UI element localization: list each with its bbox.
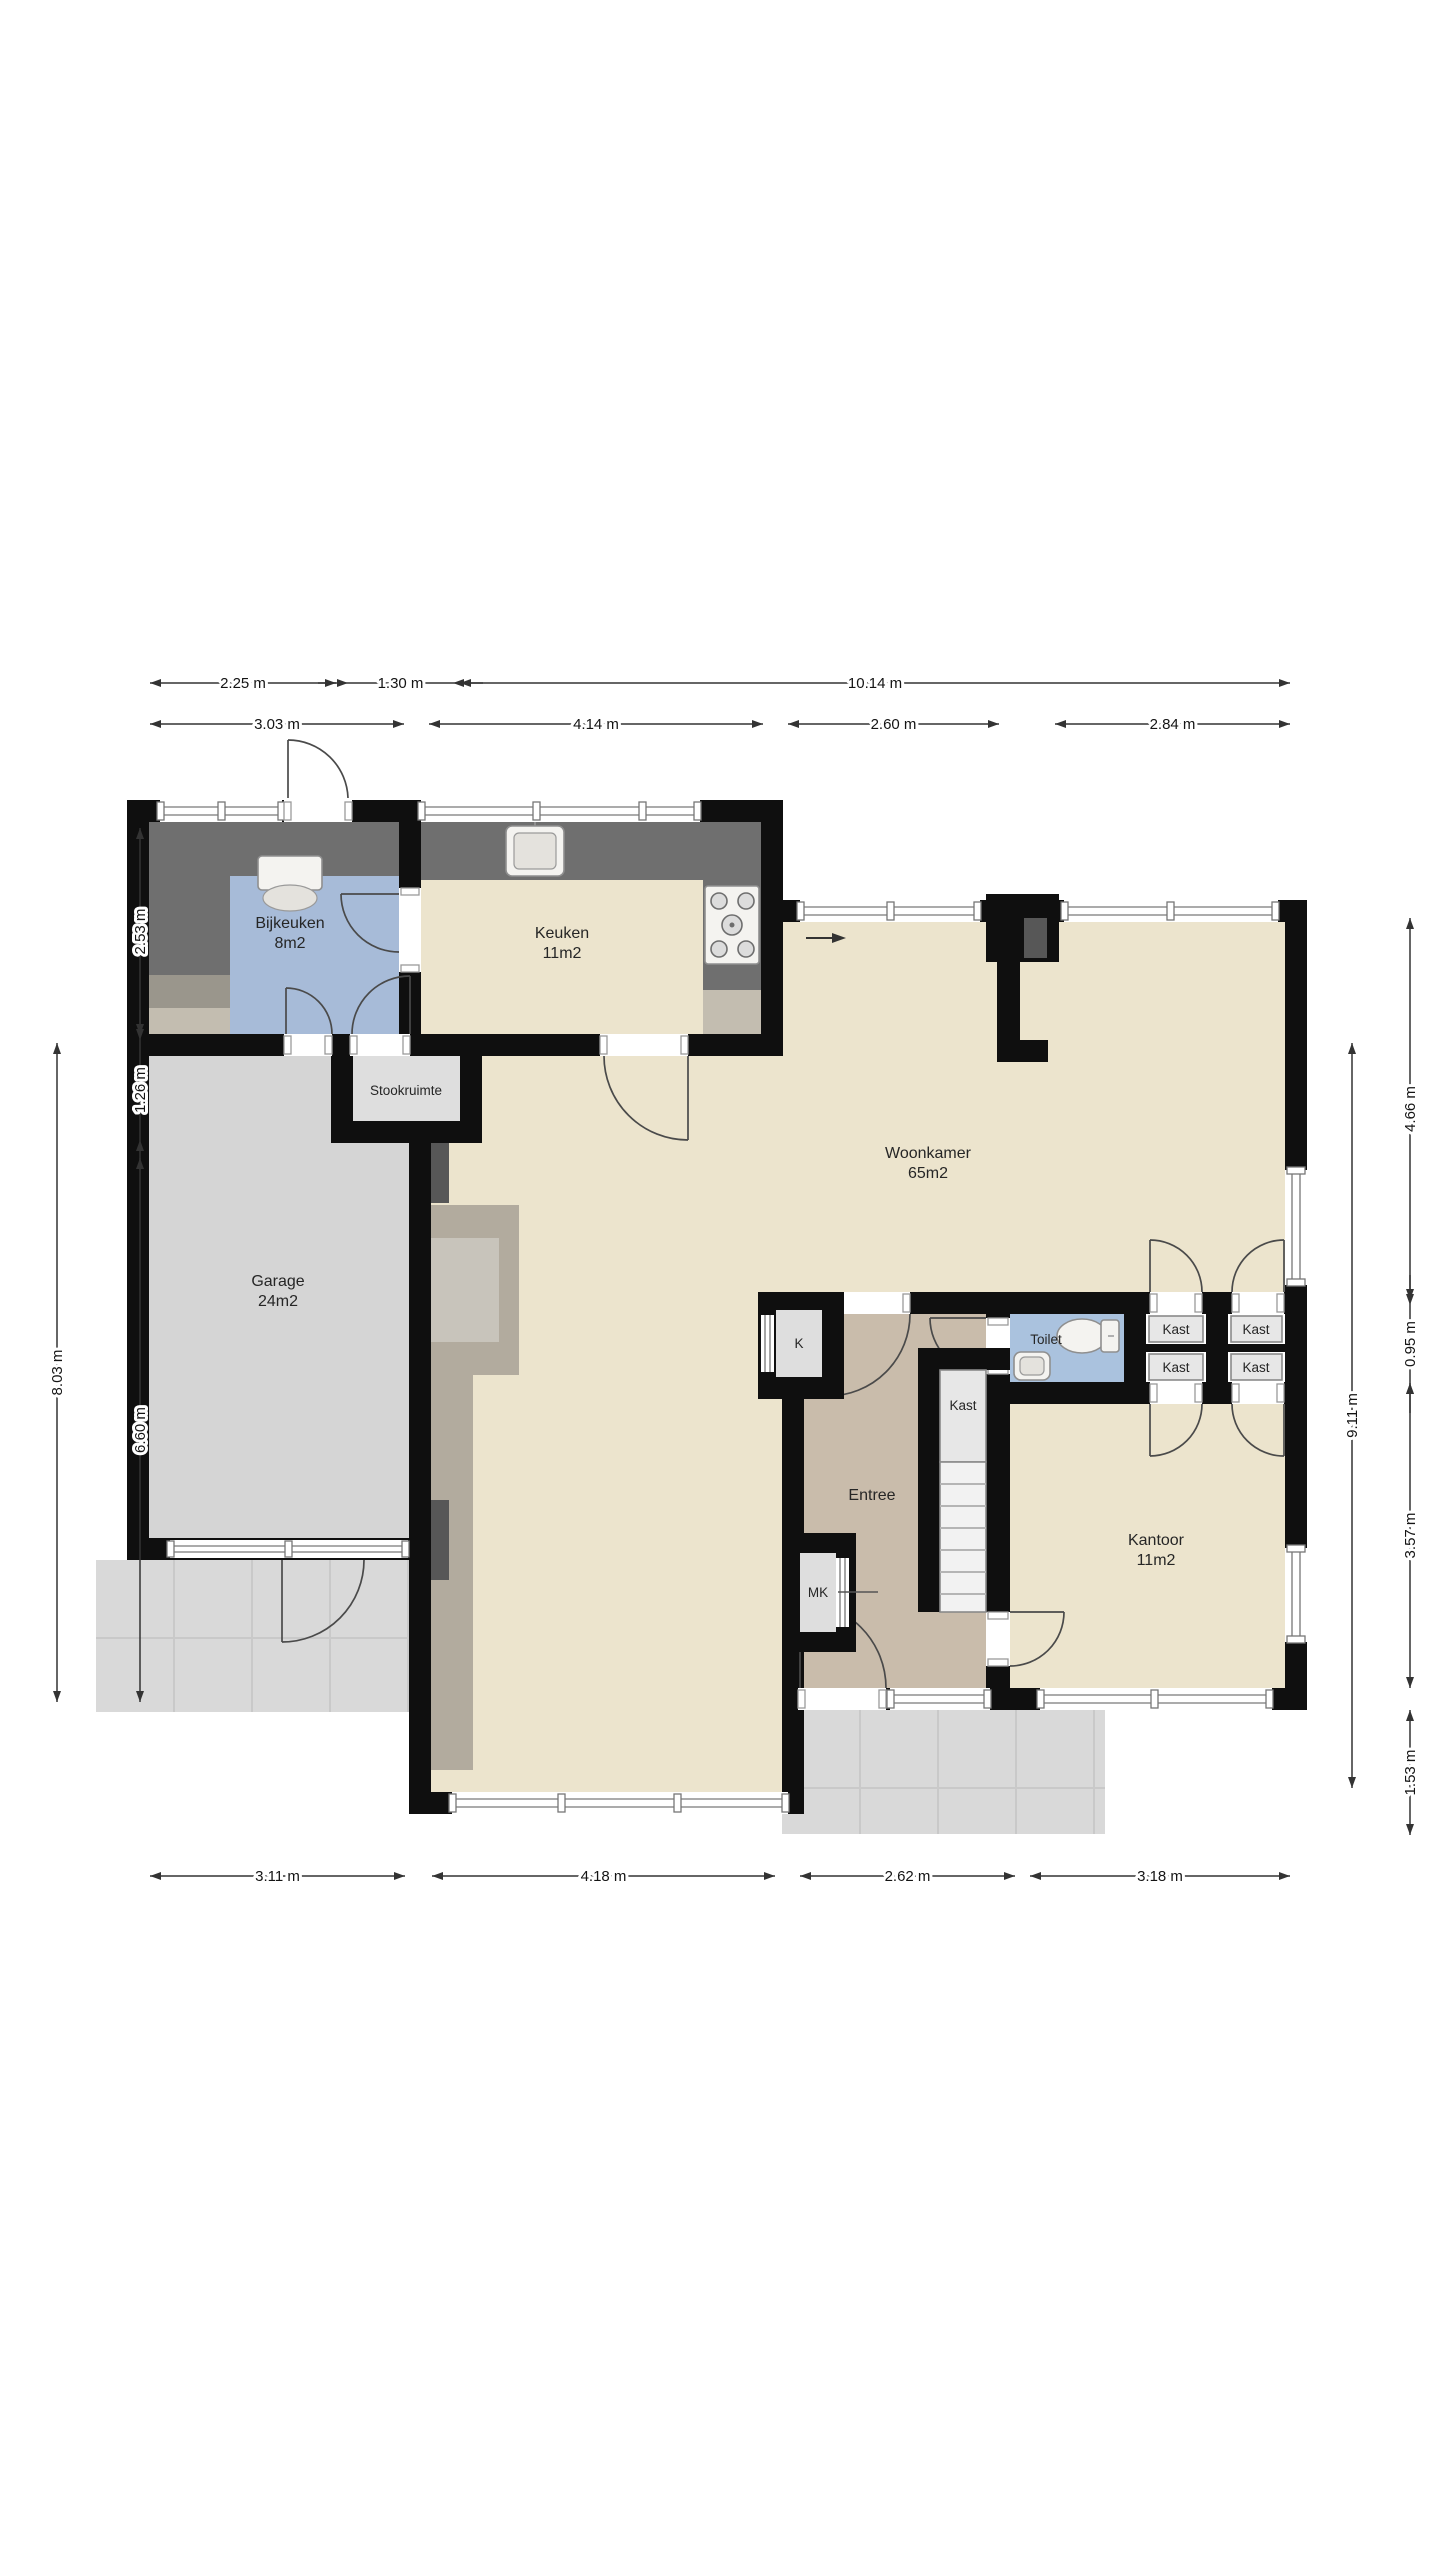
- dimension-label: 2.53 m: [132, 909, 149, 955]
- garage-door: [167, 1540, 409, 1558]
- window-woonkamer-top-right: [1061, 900, 1279, 922]
- dimension-label: 1.53 m: [1402, 1750, 1419, 1796]
- window-woonkamer-top-left: [797, 900, 981, 922]
- bijkeuken-sink: [258, 856, 322, 911]
- dimension-label: 3.03 m: [254, 716, 300, 733]
- room-label-garage: Garage: [251, 1273, 304, 1290]
- dimension-label: 1.30 m: [378, 675, 424, 692]
- dimension-label: 4.14 m: [573, 716, 619, 733]
- floorplan-drawing: Bijkeuken 8m2 Keuken 11m2 Woonkamer 65m2…: [0, 0, 1440, 2560]
- toilet-fixture: [1057, 1319, 1119, 1353]
- dimension-label: 3.11 m: [255, 1868, 300, 1885]
- dimension-label: 3.18 m: [1137, 1868, 1183, 1885]
- hand-basin: [1014, 1352, 1050, 1380]
- closet-label-4: Kast: [1242, 1360, 1269, 1375]
- room-area-keuken: 11m2: [543, 945, 582, 962]
- dimension-label: 4.18 m: [581, 1868, 627, 1885]
- terrace-left: [96, 1560, 431, 1712]
- dimension-label: 0.95 m: [1402, 1321, 1419, 1367]
- window-kantoor-bottom: [1037, 1688, 1273, 1710]
- closet-label-2: Kast: [1242, 1322, 1269, 1337]
- dimension-label: 9.11 m: [1344, 1393, 1361, 1438]
- room-label-mk: MK: [808, 1585, 828, 1600]
- closet-label-3: Kast: [1162, 1360, 1189, 1375]
- dimension-label: 2.25 m: [220, 675, 266, 692]
- room-floor-garage-lower: [149, 1143, 409, 1538]
- floorplan-page: Bijkeuken 8m2 Keuken 11m2 Woonkamer 65m2…: [0, 0, 1440, 2560]
- window-woonkamer-right: [1285, 1167, 1307, 1286]
- dimension-label: 2.84 m: [1150, 716, 1196, 733]
- closet-label-stairs: Kast: [949, 1398, 976, 1413]
- dimension-label: 8.03 m: [49, 1350, 66, 1396]
- dimension-label: 3.57 m: [1402, 1513, 1419, 1559]
- window-keuken: [418, 800, 701, 822]
- room-floor-woonkamer: [783, 922, 1285, 1292]
- window-kantoor-right: [1285, 1545, 1307, 1643]
- dimension-label: 2.60 m: [871, 716, 917, 733]
- dimension-label: 1.26 m: [132, 1067, 149, 1113]
- room-label-entree: Entree: [848, 1487, 895, 1504]
- door-bijkeuken-outside: [284, 740, 352, 822]
- closet-label-1: Kast: [1162, 1322, 1189, 1337]
- dimension-label: 6.60 m: [132, 1407, 149, 1453]
- room-label-bijkeuken: Bijkeuken: [255, 915, 324, 932]
- front-door: [798, 1688, 886, 1710]
- room-area-woonkamer: 65m2: [908, 1165, 948, 1182]
- terrace-front: [782, 1710, 1105, 1834]
- window-woonkamer-bottom: [449, 1792, 789, 1814]
- room-label-k: K: [794, 1336, 803, 1351]
- window-entree-bottom: [887, 1688, 991, 1710]
- room-floor-woonkamer-mid: [482, 1056, 783, 1292]
- room-area-bijkeuken: 8m2: [274, 935, 305, 952]
- room-label-stookruimte: Stookruimte: [370, 1083, 442, 1098]
- room-label-toilet: Toilet: [1030, 1332, 1062, 1347]
- room-label-woonkamer: Woonkamer: [885, 1145, 972, 1162]
- room-area-kantoor: 11m2: [1137, 1552, 1176, 1569]
- dimension-label: 2.62 m: [885, 1868, 931, 1885]
- room-label-kantoor: Kantoor: [1128, 1532, 1185, 1549]
- dimension-label: 10.14 m: [848, 675, 902, 692]
- room-label-keuken: Keuken: [535, 925, 589, 942]
- gas-hob: [705, 886, 759, 964]
- window-bijkeuken: [157, 800, 285, 822]
- room-area-garage: 24m2: [258, 1293, 298, 1310]
- dimension-label: 4.66 m: [1402, 1086, 1419, 1132]
